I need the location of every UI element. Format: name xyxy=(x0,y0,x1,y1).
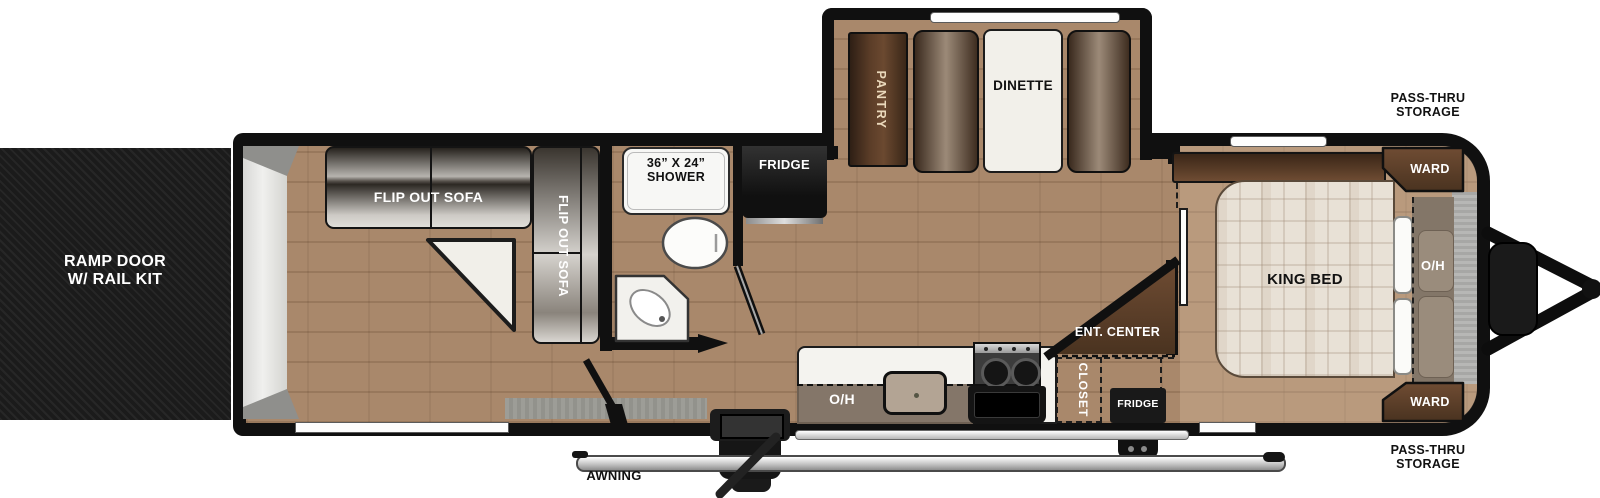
floorplan-stage: RAMP DOOR W/ RAIL KIT xyxy=(0,0,1600,498)
ramp-door-label-line2: W/ RAIL KIT xyxy=(15,271,215,289)
closet-label: CLOSET xyxy=(1069,290,1089,490)
bedroom-pocket-door xyxy=(1179,208,1188,306)
ramp-interior-panel xyxy=(243,146,287,419)
entry-step-foot xyxy=(731,479,771,492)
oh-bedroom-text: O/H xyxy=(1421,258,1445,273)
pass-thru-top-line1: PASS-THRU xyxy=(1372,91,1484,105)
sofa-seam-vertical2 xyxy=(580,148,582,342)
hitch-frame-lower xyxy=(1488,292,1592,349)
flip-sofa-v-text: FLIP OUT SOFA xyxy=(556,195,571,297)
burner-right xyxy=(1011,358,1041,388)
stove-knob-1 xyxy=(984,347,988,351)
king-bed-text: KING BED xyxy=(1267,271,1343,288)
dinette-bench-left xyxy=(913,30,979,173)
propane-tank xyxy=(1489,243,1537,335)
ward-bottom-label: WARD xyxy=(1398,395,1462,409)
slideout-window xyxy=(930,12,1120,23)
awning-rail xyxy=(576,455,1286,472)
pillow-bottom xyxy=(1393,298,1413,375)
burner-left xyxy=(981,358,1011,388)
kitchen-sink xyxy=(883,371,947,415)
dinette-bench-right xyxy=(1067,30,1131,173)
flip-sofa-h-text: FLIP OUT SOFA xyxy=(374,189,483,205)
bracket-bolt-1 xyxy=(1128,446,1134,452)
oven-door xyxy=(974,392,1040,418)
pantry-text: PANTRY xyxy=(874,71,888,130)
awning-text: AWNING xyxy=(586,468,641,483)
shower-label-line2: SHOWER xyxy=(622,170,730,184)
ramp-door-label-line1: RAMP DOOR xyxy=(15,253,215,271)
entry-step-tread xyxy=(720,414,784,439)
entry-step-upper xyxy=(710,409,790,441)
awning-label: AWNING xyxy=(572,469,656,484)
pillow-top xyxy=(1393,216,1413,294)
oven xyxy=(968,386,1046,424)
fridge-main-text: FRIDGE xyxy=(759,157,810,172)
stove-cooktop xyxy=(973,342,1041,386)
fridge-bedroom-text: FRIDGE xyxy=(1117,398,1158,410)
entry-landing-mat xyxy=(505,398,707,419)
closet-text: CLOSET xyxy=(1076,363,1090,418)
closet-dash-extension xyxy=(1104,357,1174,359)
pass-thru-bottom-line2: STORAGE xyxy=(1372,457,1484,471)
bath-wall-bottom xyxy=(600,337,700,350)
oh-bedroom-label: O/H xyxy=(1412,259,1454,274)
stove-knob-3 xyxy=(1012,347,1016,351)
ent-center-wall xyxy=(1166,260,1178,355)
king-bed-label: KING BED xyxy=(1215,271,1395,288)
shower-label-line1: 36” X 24” xyxy=(622,156,730,170)
dinette-table xyxy=(983,29,1063,173)
fridge-main-label: FRIDGE xyxy=(742,158,827,173)
awning-rail-cap-left xyxy=(572,451,588,458)
garage-bottom-window xyxy=(295,422,509,433)
fridge-main-base xyxy=(746,218,823,224)
bedroom-top-window xyxy=(1230,136,1327,147)
ward-bottom-text: WARD xyxy=(1410,395,1449,409)
awning-rail-cap-right xyxy=(1263,452,1285,462)
pass-thru-bottom-label: PASS-THRU STORAGE xyxy=(1372,443,1484,472)
ent-center-text: ENT. CENTER xyxy=(1075,325,1160,339)
oh-door-bottom xyxy=(1418,296,1454,378)
ward-top-label: WARD xyxy=(1398,162,1462,176)
bedroom-overhead-cabinet xyxy=(1412,197,1454,384)
flip-sofa-v-label: FLIP OUT SOFA xyxy=(550,146,570,346)
dinette-label: DINETTE xyxy=(983,78,1063,94)
pantry-label: PANTRY xyxy=(868,0,888,200)
lower-trim-rail xyxy=(795,430,1189,440)
stove-knob-2 xyxy=(998,347,1002,351)
pass-thru-top-label: PASS-THRU STORAGE xyxy=(1372,91,1484,120)
shower-label: 36” X 24” SHOWER xyxy=(622,156,730,185)
oh-kitchen-label: O/H xyxy=(802,391,882,407)
stove-knob-4 xyxy=(1026,347,1030,351)
front-pass-thru-strip xyxy=(1452,192,1477,384)
hitch-coupler xyxy=(1582,279,1600,299)
bath-wall-left xyxy=(600,146,612,351)
fridge-bedroom-label: FRIDGE xyxy=(1110,398,1166,410)
flip-sofa-h-label: FLIP OUT SOFA xyxy=(325,189,532,205)
sofa-seam-vertical xyxy=(430,148,432,227)
bed-headboard-shelf xyxy=(1172,152,1386,183)
ramp-door-label: RAMP DOOR W/ RAIL KIT xyxy=(15,253,215,290)
oh-kitchen-text: O/H xyxy=(829,391,855,407)
ward-top-text: WARD xyxy=(1410,162,1449,176)
hitch-frame-upper xyxy=(1488,233,1592,286)
sink-drain xyxy=(914,393,919,398)
dinette-text: DINETTE xyxy=(993,78,1053,93)
pass-thru-top-line2: STORAGE xyxy=(1372,105,1484,119)
flip-out-sofa-horizontal xyxy=(325,146,532,229)
bracket-bolt-2 xyxy=(1141,446,1147,452)
bedroom-bottom-window xyxy=(1199,422,1256,433)
pass-thru-bottom-line1: PASS-THRU xyxy=(1372,443,1484,457)
ent-center-label: ENT. CENTER xyxy=(1060,325,1175,339)
